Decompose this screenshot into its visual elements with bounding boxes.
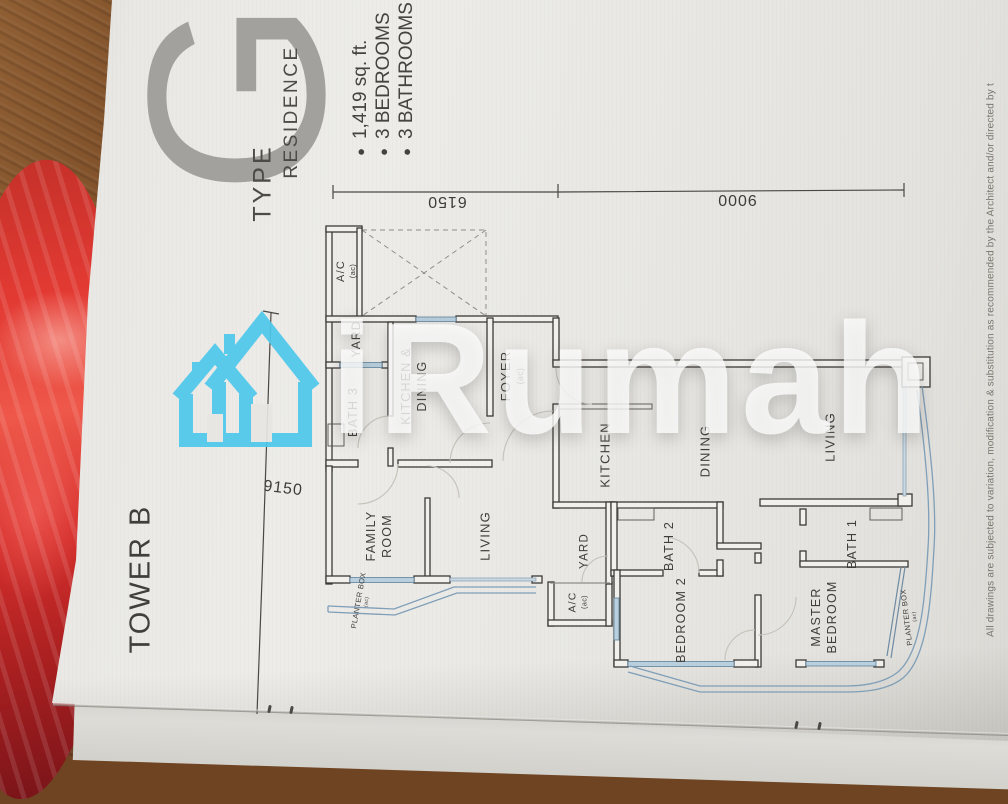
room-label-bath-2: BATH 2 bbox=[661, 521, 677, 571]
room-label-bath-1: BATH 1 bbox=[844, 519, 860, 569]
room-label-bedroom-2: BEDROOM 2 bbox=[673, 577, 689, 663]
room-label-living-left: LIVING bbox=[478, 511, 495, 561]
room-label-ac-lower: A/C(ac) bbox=[567, 591, 590, 612]
watermark-house-icon bbox=[178, 322, 314, 442]
room-label-ac-upper: A/C(ac) bbox=[334, 260, 358, 282]
watermark-brand-text: iRumah bbox=[330, 300, 933, 458]
room-label-family-room: FAMILYROOM bbox=[363, 511, 396, 562]
room-label-yard-lower: YARD bbox=[578, 533, 593, 569]
house-door-notch bbox=[251, 404, 272, 442]
house-door-notch bbox=[207, 414, 223, 442]
room-label-master-bedroom: MASTERBEDROOM bbox=[808, 581, 841, 654]
